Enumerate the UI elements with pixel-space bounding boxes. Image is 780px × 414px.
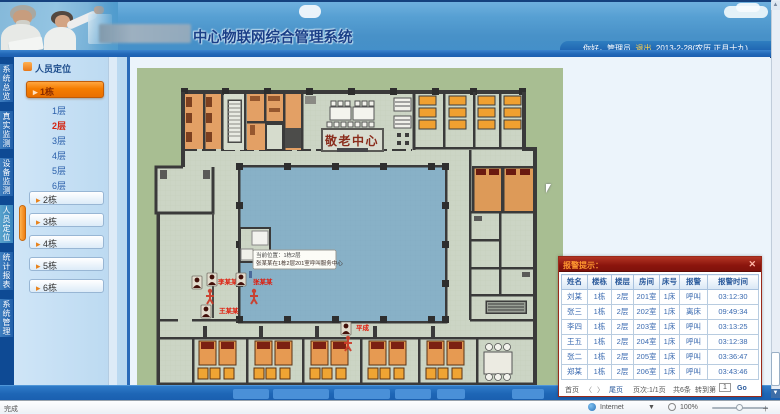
svg-text:张某某: 张某某 xyxy=(253,277,273,286)
svg-text:李某某: 李某某 xyxy=(217,277,238,286)
svg-text:平成: 平成 xyxy=(356,323,370,332)
svg-text:王某某: 王某某 xyxy=(219,306,239,315)
svg-text:张某某在1栋2层201室呼叫服务中心: 张某某在1栋2层201室呼叫服务中心 xyxy=(256,259,343,267)
svg-text:敬老中心: 敬老中心 xyxy=(324,133,379,148)
svg-text:当前位置：1栋2层: 当前位置：1栋2层 xyxy=(256,251,301,259)
